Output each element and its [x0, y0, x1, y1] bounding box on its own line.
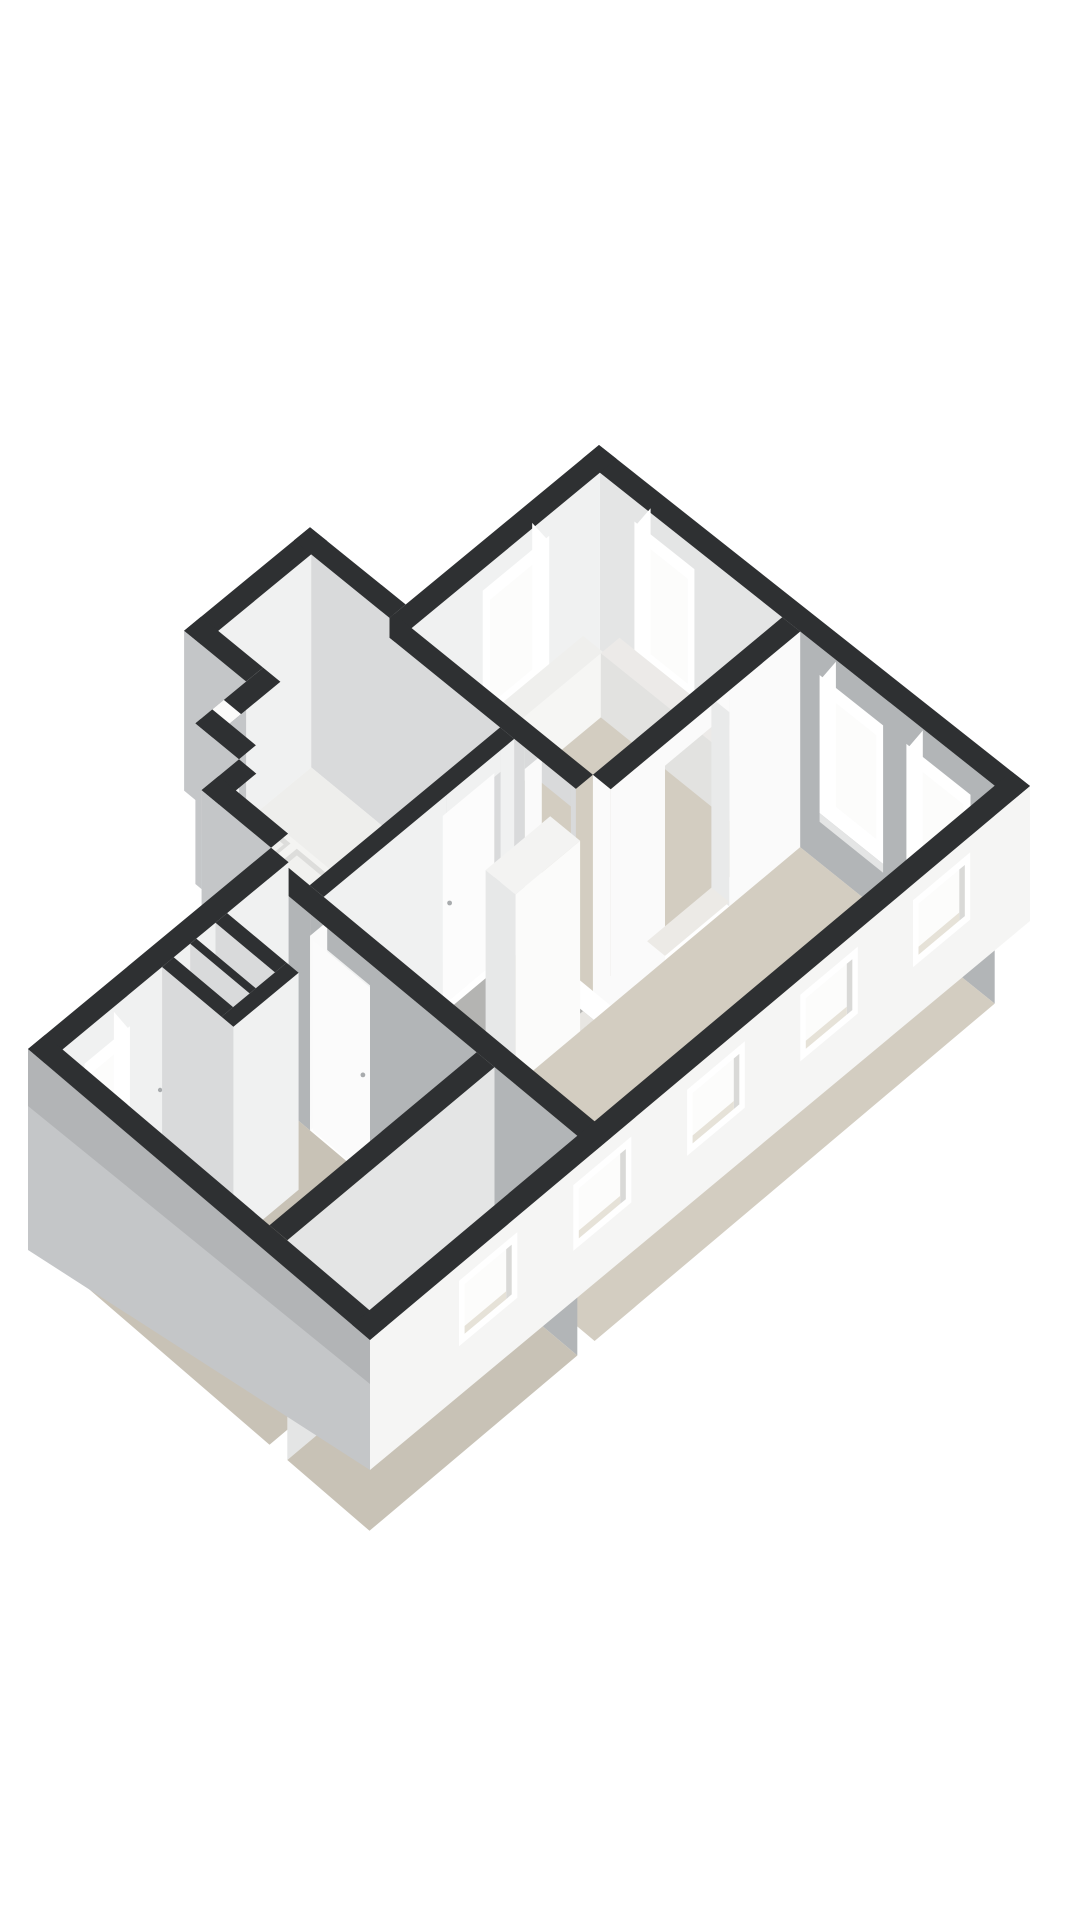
wall-face — [611, 744, 665, 1006]
window-reveal — [532, 523, 546, 677]
window-reveal — [847, 959, 853, 1014]
floor-plan-3d-render — [0, 0, 1080, 1920]
door-handle — [447, 901, 452, 906]
window-reveal — [506, 1245, 512, 1300]
wall-end-cap — [593, 775, 611, 1006]
window-reveal — [734, 1054, 740, 1109]
floor-plan-page — [0, 0, 1080, 1920]
window-reveal — [823, 662, 836, 816]
portal-jamb — [711, 698, 729, 907]
window-reveal — [620, 1149, 626, 1204]
window-reveal — [959, 865, 965, 921]
front-door-handle — [158, 1088, 162, 1092]
door-handle — [361, 1073, 366, 1078]
window-reveal — [637, 508, 650, 662]
